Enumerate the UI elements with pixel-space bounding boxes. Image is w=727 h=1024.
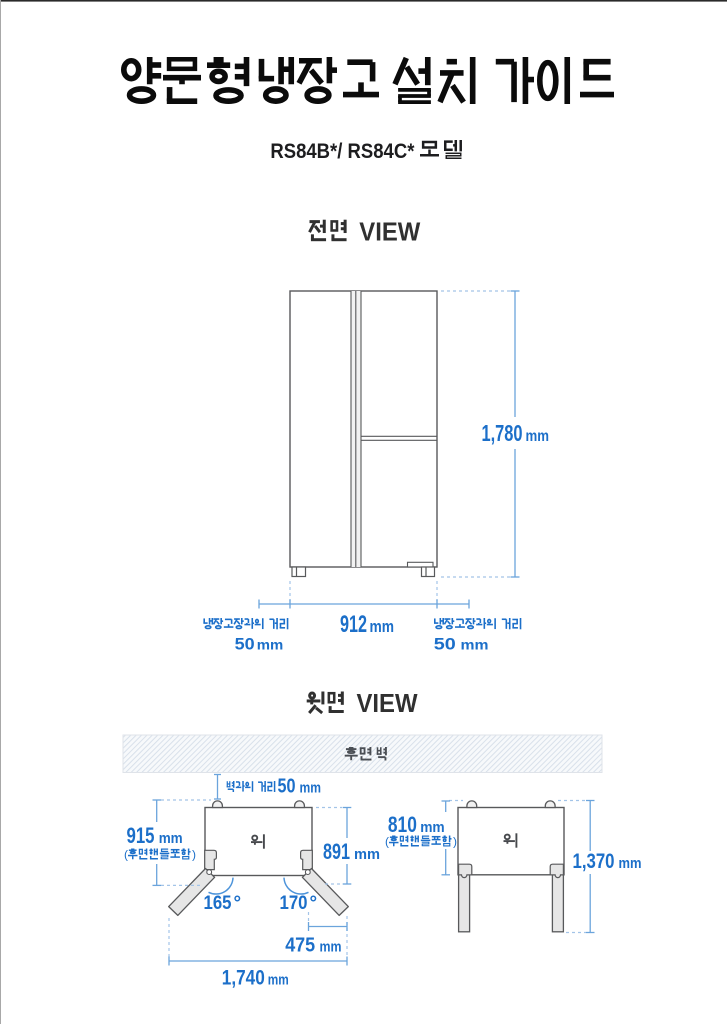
svg-text:): ) xyxy=(192,848,196,862)
svg-text:VIEW: VIEW xyxy=(357,688,418,718)
svg-text:475: 475 xyxy=(285,935,315,957)
svg-text:1,780: 1,780 xyxy=(482,420,523,446)
svg-text:(: ( xyxy=(385,835,389,849)
svg-text:810: 810 xyxy=(388,812,417,837)
svg-text:mm: mm xyxy=(526,428,550,445)
svg-text:mm: mm xyxy=(354,846,380,863)
svg-text:mm: mm xyxy=(619,855,642,872)
svg-text:°: ° xyxy=(310,893,318,914)
svg-text:°: ° xyxy=(234,893,242,914)
svg-text:1,740: 1,740 xyxy=(222,967,265,990)
svg-text:mm: mm xyxy=(420,819,445,836)
svg-text:170: 170 xyxy=(280,893,308,914)
svg-text:891: 891 xyxy=(323,839,350,864)
svg-text:50: 50 xyxy=(278,776,296,798)
svg-text:(: ( xyxy=(124,848,128,862)
svg-text:mm: mm xyxy=(257,637,284,653)
svg-text:50: 50 xyxy=(434,635,456,654)
svg-text:912: 912 xyxy=(340,611,367,638)
svg-text:1,370: 1,370 xyxy=(573,850,615,873)
svg-text:mm: mm xyxy=(370,617,395,636)
svg-text:165: 165 xyxy=(204,893,232,914)
svg-text:915: 915 xyxy=(127,823,155,848)
svg-text:RS84B*/ RS84C*: RS84B*/ RS84C* xyxy=(270,140,415,163)
svg-text:mm: mm xyxy=(159,830,183,847)
svg-text:): ) xyxy=(453,835,457,849)
svg-text:VIEW: VIEW xyxy=(359,216,420,246)
svg-text:mm: mm xyxy=(300,780,322,797)
svg-text:mm: mm xyxy=(268,972,289,989)
svg-text:50: 50 xyxy=(235,635,255,654)
svg-text:mm: mm xyxy=(461,637,489,653)
svg-text:mm: mm xyxy=(320,939,342,956)
